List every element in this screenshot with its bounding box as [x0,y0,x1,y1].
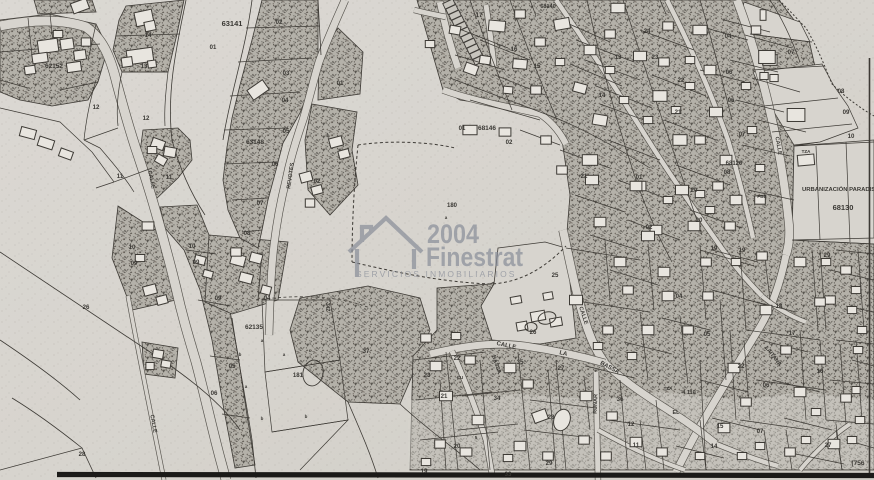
svg-text:16: 16 [817,368,824,375]
svg-text:08: 08 [244,230,251,237]
svg-text:09: 09 [193,259,200,266]
svg-text:01: 01 [210,45,217,51]
svg-text:10: 10 [129,244,136,251]
svg-text:02: 02 [314,178,321,185]
svg-text:04: 04 [264,295,271,302]
svg-text:16: 16 [511,46,518,53]
svg-text:b: b [327,133,330,138]
svg-text:EL: EL [672,410,680,416]
svg-text:14: 14 [599,92,606,99]
svg-text:07: 07 [739,131,746,138]
svg-text:34: 34 [494,395,501,402]
svg-text:17: 17 [476,12,483,19]
svg-text:20: 20 [691,187,698,194]
svg-text:11: 11 [117,173,124,180]
svg-text:26: 26 [530,329,537,336]
svg-text:b: b [305,414,308,419]
svg-text:08: 08 [838,88,845,95]
svg-text:09: 09 [131,260,138,267]
svg-text:CU: CU [457,375,464,380]
svg-text:63148: 63148 [246,139,264,146]
svg-text:06: 06 [728,97,735,104]
svg-text:05: 05 [704,331,711,338]
svg-text:20: 20 [696,217,703,224]
svg-text:29: 29 [824,252,831,259]
svg-text:62152: 62152 [45,63,63,70]
svg-text:21: 21 [675,109,682,116]
svg-text:04: 04 [676,293,683,300]
svg-text:68140: 68140 [540,4,555,10]
svg-text:27: 27 [825,442,832,449]
svg-text:12: 12 [628,421,635,428]
svg-text:07: 07 [788,49,795,56]
svg-text:28: 28 [548,414,555,421]
svg-text:14: 14 [711,443,718,450]
svg-text:29: 29 [546,460,553,467]
svg-text:63141: 63141 [222,19,243,28]
svg-text:TZA: TZA [664,386,673,391]
svg-text:01: 01 [636,174,643,181]
svg-text:22: 22 [738,363,745,370]
svg-text:33: 33 [505,471,512,478]
svg-text:22: 22 [454,355,461,362]
svg-text:09: 09 [215,295,222,302]
svg-text:SERVICIOS INMOBILIARIOS: SERVICIOS INMOBILIARIOS [356,269,517,279]
svg-text:23: 23 [652,54,659,61]
svg-text:24: 24 [644,28,651,35]
svg-text:06: 06 [763,382,770,389]
svg-text:RUNAR: RUNAR [593,394,600,414]
svg-text:68130: 68130 [833,203,854,212]
svg-text:13: 13 [615,54,622,61]
svg-text:[756: [756 [851,460,864,467]
svg-text:18: 18 [776,303,783,310]
svg-text:19: 19 [711,245,718,252]
svg-text:Finestrat: Finestrat [426,242,523,272]
svg-text:4 110: 4 110 [682,390,695,396]
svg-text:26: 26 [83,304,90,311]
svg-text:20: 20 [454,443,461,450]
svg-text:09: 09 [843,109,850,116]
svg-text:11: 11 [166,174,173,181]
svg-text:URBANIZACIÓN PARADIS: URBANIZACIÓN PARADIS [802,185,874,193]
svg-text:06: 06 [211,390,218,397]
svg-text:36: 36 [617,396,624,403]
svg-text:14: 14 [145,32,152,39]
svg-text:06: 06 [726,69,733,76]
svg-text:34Z: 34Z [324,303,330,312]
svg-text:01: 01 [337,80,344,87]
svg-text:02: 02 [276,19,283,26]
svg-text:15: 15 [534,63,541,70]
svg-text:08: 08 [724,169,731,176]
svg-text:03: 03 [283,70,290,77]
svg-text:12: 12 [143,115,150,122]
svg-text:23: 23 [424,372,431,379]
svg-text:19: 19 [421,468,428,475]
svg-text:02: 02 [506,139,513,146]
svg-text:68146: 68146 [478,125,496,132]
svg-text:12: 12 [93,104,100,111]
svg-text:181: 181 [293,372,304,379]
svg-text:01: 01 [459,125,466,132]
svg-text:22: 22 [678,77,685,84]
svg-text:37: 37 [363,348,370,355]
svg-text:68120: 68120 [726,161,743,167]
svg-text:180: 180 [447,203,458,209]
svg-text:b: b [239,352,242,357]
svg-text:21: 21 [581,173,588,180]
svg-text:28: 28 [79,451,86,458]
svg-text:07: 07 [757,428,764,435]
svg-text:05: 05 [283,128,290,135]
svg-text:04: 04 [725,33,732,40]
svg-text:25: 25 [552,272,559,279]
svg-text:13: 13 [141,63,148,70]
svg-text:21: 21 [441,393,448,400]
svg-text:05: 05 [229,363,236,370]
svg-text:06: 06 [272,161,279,168]
svg-text:15: 15 [717,423,724,430]
svg-text:b: b [261,416,264,421]
svg-text:19: 19 [739,247,746,254]
svg-text:02: 02 [646,224,653,231]
svg-text:10: 10 [189,243,196,250]
svg-text:17: 17 [789,330,796,337]
svg-text:11: 11 [633,442,640,449]
svg-text:04: 04 [282,97,289,104]
svg-text:27: 27 [558,365,565,372]
svg-text:62135: 62135 [245,324,263,331]
svg-text:07: 07 [257,200,264,207]
svg-text:35: 35 [517,359,524,366]
svg-text:TZA: TZA [802,149,811,154]
svg-text:10: 10 [848,133,855,140]
svg-text:PBB: PBB [757,194,767,199]
